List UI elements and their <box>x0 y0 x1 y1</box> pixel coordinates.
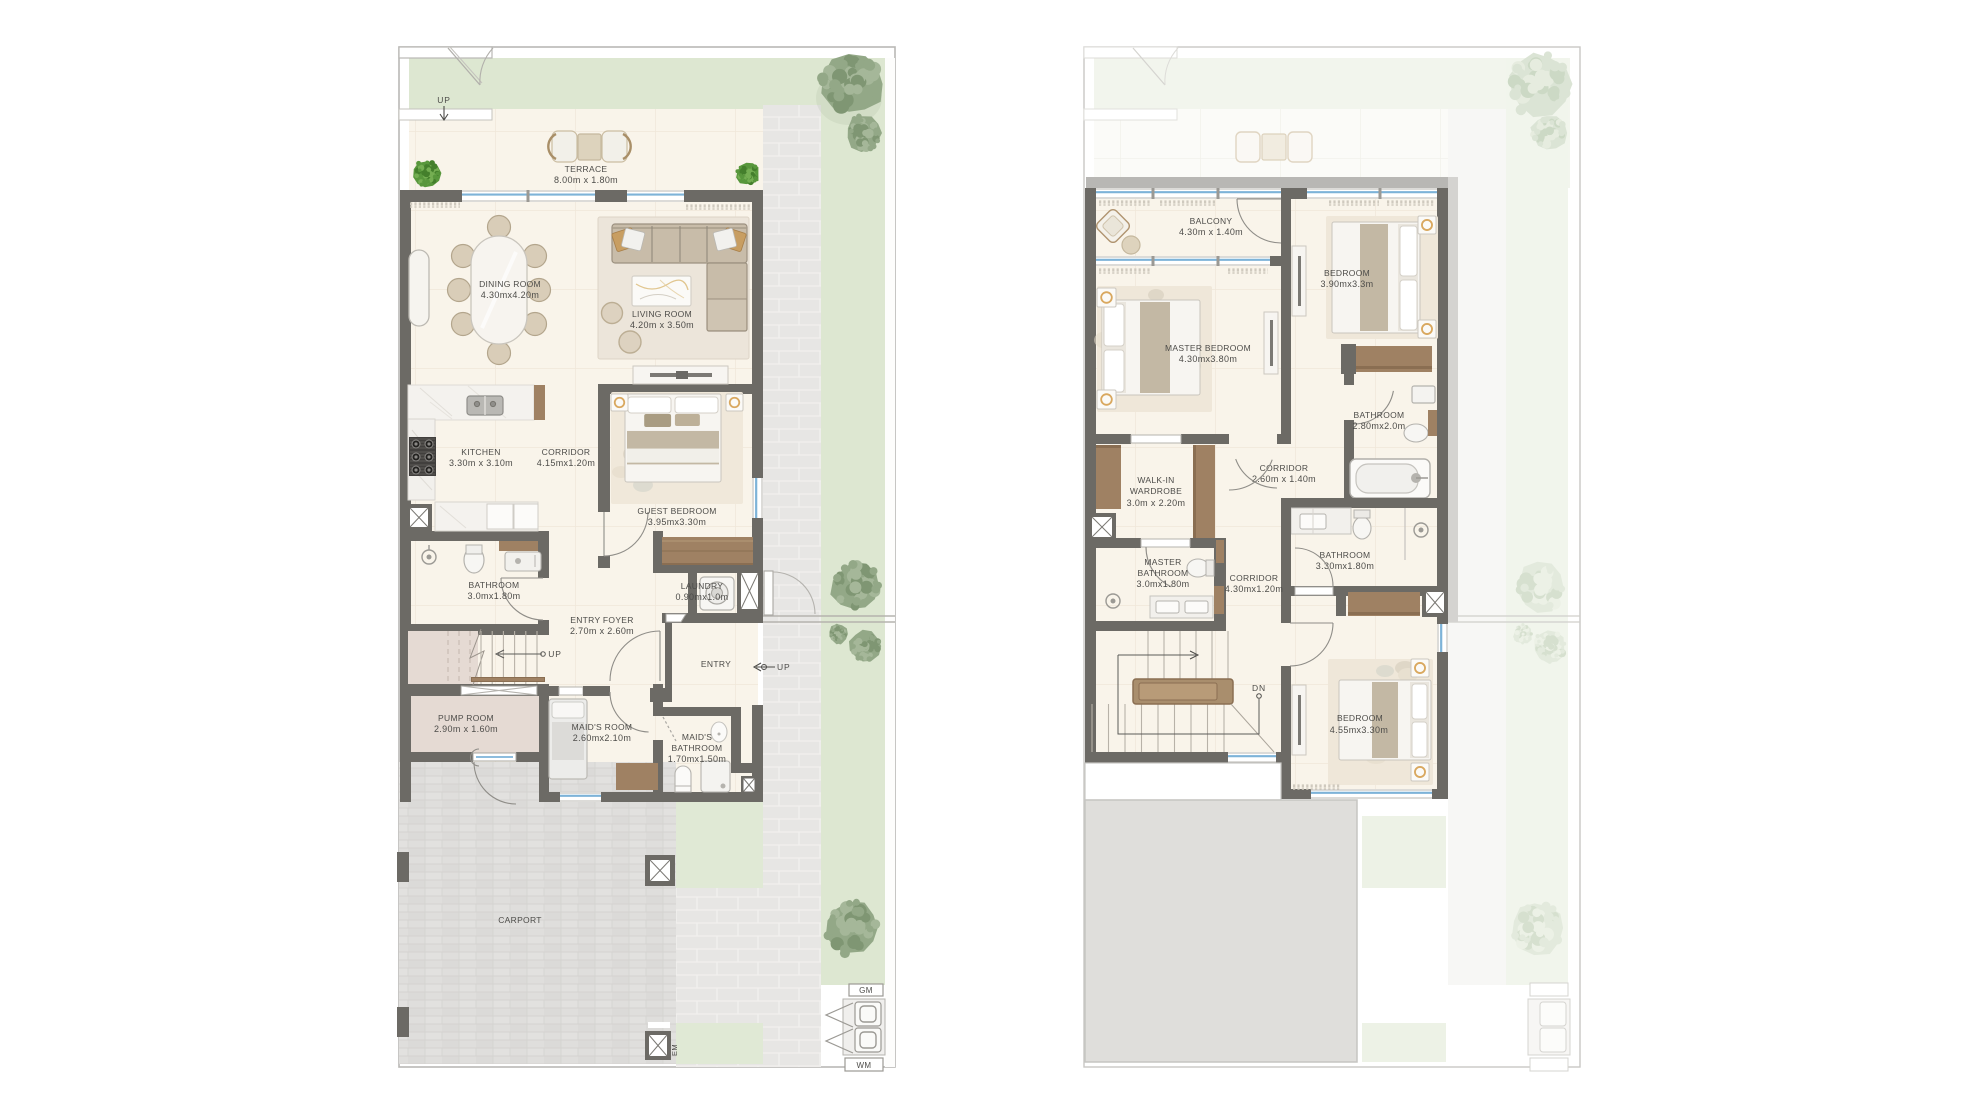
svg-text:PUMP ROOM: PUMP ROOM <box>438 713 494 723</box>
svg-text:KITCHEN: KITCHEN <box>461 447 500 457</box>
svg-text:MAID'S: MAID'S <box>682 732 712 742</box>
svg-text:MASTER: MASTER <box>1144 557 1181 567</box>
svg-text:0.90mx1.0m: 0.90mx1.0m <box>675 592 728 602</box>
svg-text:MAID'S ROOM: MAID'S ROOM <box>572 722 633 732</box>
svg-text:1.70mx1.50m: 1.70mx1.50m <box>668 754 726 764</box>
svg-text:BATHROOM: BATHROOM <box>1138 568 1189 578</box>
svg-text:4.55mx3.30m: 4.55mx3.30m <box>1330 725 1388 735</box>
svg-text:3.30m x 3.10m: 3.30m x 3.10m <box>449 458 513 468</box>
svg-text:WARDROBE: WARDROBE <box>1130 486 1182 496</box>
svg-text:3.90mx3.3m: 3.90mx3.3m <box>1320 279 1373 289</box>
svg-text:BATHROOM: BATHROOM <box>1320 550 1371 560</box>
svg-text:GUEST BEDROOM: GUEST BEDROOM <box>637 506 716 516</box>
svg-text:4.30m x 1.40m: 4.30m x 1.40m <box>1179 227 1243 237</box>
svg-text:CORRIDOR: CORRIDOR <box>1230 573 1279 583</box>
svg-text:4.30mx3.80m: 4.30mx3.80m <box>1179 354 1237 364</box>
svg-text:BATHROOM: BATHROOM <box>1354 410 1405 420</box>
svg-text:TERRACE: TERRACE <box>565 164 608 174</box>
svg-text:4.30mx4.20m: 4.30mx4.20m <box>481 290 539 300</box>
svg-text:2.80mx2.0m: 2.80mx2.0m <box>1352 421 1405 431</box>
svg-text:3.0mx1.80m: 3.0mx1.80m <box>1136 579 1189 589</box>
svg-text:BEDROOM: BEDROOM <box>1324 268 1370 278</box>
svg-text:WALK-IN: WALK-IN <box>1137 475 1174 485</box>
svg-text:BATHROOM: BATHROOM <box>672 743 723 753</box>
svg-text:LIVING ROOM: LIVING ROOM <box>632 309 692 319</box>
svg-text:BATHROOM: BATHROOM <box>469 580 520 590</box>
svg-text:BALCONY: BALCONY <box>1190 216 1233 226</box>
svg-text:4.20m x 3.50m: 4.20m x 3.50m <box>630 320 694 330</box>
svg-text:EM: EM <box>670 1044 679 1056</box>
svg-text:BEDROOM: BEDROOM <box>1337 713 1383 723</box>
svg-text:3.0mx1.80m: 3.0mx1.80m <box>467 591 520 601</box>
svg-text:DN: DN <box>1252 683 1266 693</box>
svg-text:3.95mx3.30m: 3.95mx3.30m <box>648 517 706 527</box>
svg-text:8.00m x 1.80m: 8.00m x 1.80m <box>554 175 618 185</box>
svg-text:DINING ROOM: DINING ROOM <box>479 279 541 289</box>
svg-text:CORRIDOR: CORRIDOR <box>1260 463 1309 473</box>
svg-text:UP: UP <box>437 95 450 105</box>
svg-text:LAUNDRY: LAUNDRY <box>681 581 724 591</box>
svg-text:2.60m x 1.40m: 2.60m x 1.40m <box>1252 474 1316 484</box>
svg-text:ENTRY: ENTRY <box>701 659 731 669</box>
svg-text:2.70m x 2.60m: 2.70m x 2.60m <box>570 626 634 636</box>
svg-text:CARPORT: CARPORT <box>498 915 542 925</box>
svg-text:GM: GM <box>859 986 873 995</box>
svg-text:4.30mx1.20m: 4.30mx1.20m <box>1225 584 1283 594</box>
svg-text:ENTRY FOYER: ENTRY FOYER <box>570 615 633 625</box>
svg-text:UP: UP <box>548 649 561 659</box>
svg-text:WM: WM <box>856 1061 871 1070</box>
svg-text:3.0m x 2.20m: 3.0m x 2.20m <box>1127 498 1186 508</box>
svg-text:4.15mx1.20m: 4.15mx1.20m <box>537 458 595 468</box>
svg-text:2.60mx2.10m: 2.60mx2.10m <box>573 733 631 743</box>
svg-text:CORRIDOR: CORRIDOR <box>542 447 591 457</box>
svg-text:MASTER BEDROOM: MASTER BEDROOM <box>1165 343 1251 353</box>
svg-text:UP: UP <box>777 662 790 672</box>
svg-text:2.90m x 1.60m: 2.90m x 1.60m <box>434 724 498 734</box>
